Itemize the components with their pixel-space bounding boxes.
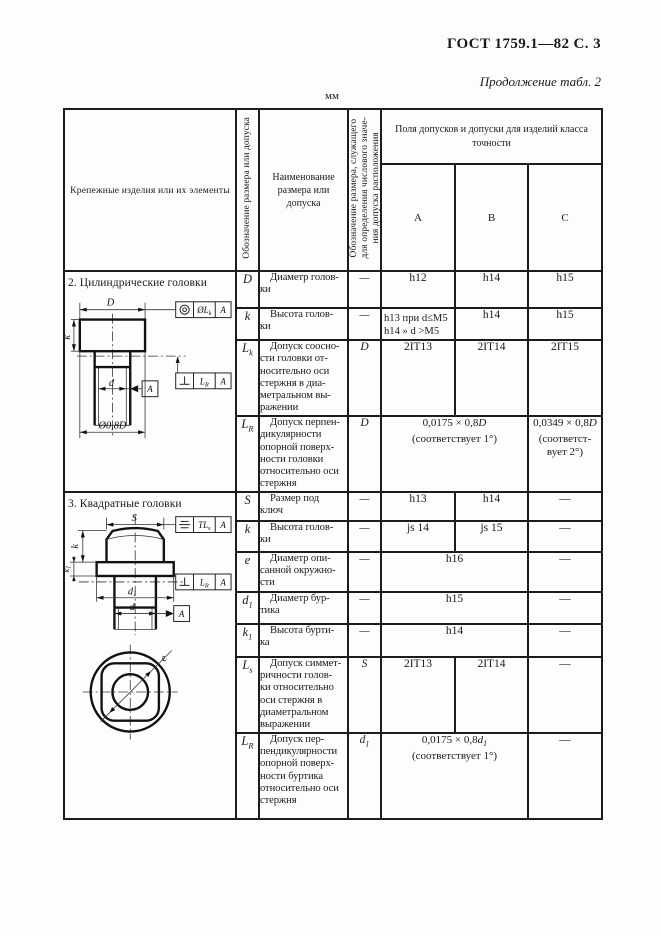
symmetry-tolerance-frame: TLs A [176,516,231,532]
header-name: Наименование размера или допуска [259,109,348,271]
ref-cell: — [348,552,381,592]
value-c: — [528,657,602,733]
frame-label: ØL [196,305,208,315]
value-c: — [528,521,602,552]
symbol-cell: S [236,492,259,521]
header-items-label: Крепежные изделия или их элементы [70,185,230,196]
header-symbol: Обозначение размера или допуска [236,109,259,271]
name-cell: Высота голов- ки [259,521,348,552]
svg-text:LR: LR [199,577,209,589]
value-c: h15 [528,271,602,308]
symbol-cell: LR [236,733,259,819]
header-items: Крепежные изделия или их элементы [64,109,236,271]
square-head-bottom-view: e [65,640,235,748]
cylindrical-head-drawing: D ØLk A k [65,289,235,447]
ref-cell: d1 [348,733,381,819]
header-name-label: Наименование размера или допуска [272,172,334,209]
symbol-cell: Ls [236,657,259,733]
frame-datum-label: A [219,577,226,587]
name-cell: Высота бурти- ка [259,624,348,657]
document-page: ГОСТ 1759.1—82 С. 3 Продолжение табл. 2 … [0,0,661,936]
ref-cell: — [348,492,381,521]
symmetry-icon [179,521,190,527]
ref-cell: — [348,592,381,624]
perpendicularity-tolerance-frame: LR A [176,356,231,389]
frame-label-sub: k [209,310,212,317]
value-ab: h14 [381,624,528,657]
value-c: — [528,552,602,592]
tolerance-table: Крепежные изделия или их элементы Обозна… [63,108,603,820]
header-ref: Обозначение размера, служащего для опред… [348,109,381,271]
value-a: js 14 [381,521,455,552]
svg-text:k1: k1 [65,565,72,572]
value-a: 2IT13 [381,657,455,733]
name-cell: Диаметр голов- ки [259,271,348,308]
header-ref-label: Обозначение размера, служащего для опред… [349,117,381,258]
name-cell: Высота голов- ки [259,308,348,340]
value-a: h13 при d≤M5 h14 » d >M5 [381,308,455,340]
header-class-b: В [455,164,528,271]
frame-label-sub: R [204,582,209,589]
symbol-cell: Lk [236,340,259,416]
datum-label: A [146,384,153,394]
dim-label-S: S [132,513,138,524]
ref-cell: S [348,657,381,733]
section-cylindrical-heads: 2. Цилиндрические головки D ØLk A [64,271,236,492]
datum-flag: A [174,605,190,621]
concentricity-tolerance-frame: ØLk A [176,302,231,318]
name-cell: Размер под ключ [259,492,348,521]
frame-label-sub: s [208,525,211,532]
header-class-c: С [528,164,602,271]
datum-label: A [178,609,185,619]
dim-label-k: k [65,335,73,340]
symbol-cell: e [236,552,259,592]
value-c: — [528,492,602,521]
value-c: — [528,733,602,819]
value-c: h15 [528,308,602,340]
dim-label-d: d [130,602,136,613]
name-cell: Допуск пер- пендикулярности опорной пове… [259,733,348,819]
value-b: h14 [455,492,528,521]
value-c: — [528,624,602,657]
symbol-cell: k [236,308,259,340]
frame-label-sub: R [204,381,209,388]
ref-cell: — [348,271,381,308]
frame-datum-label: A [219,520,226,530]
header-tolerance-group-label: Поля допусков и допуски для изделий клас… [395,124,588,149]
value-a: h13 [381,492,455,521]
table-row: 2. Цилиндрические головки D ØLk A [64,271,602,308]
value-a: h12 [381,271,455,308]
concentricity-icon [180,305,189,314]
value-ab: 0,0175 × 0,8d1 (соответствует 1°) [381,733,528,819]
symbol-cell: k [236,521,259,552]
section-caption: 3. Квадратные головки [65,493,235,510]
table-header-row: Крепежные изделия или их элементы Обозна… [64,109,602,164]
dim-label-d1-sub: 1 [133,591,136,598]
table-row: 3. Квадратные головки S TLs [64,492,602,521]
symbol-cell: k1 [236,624,259,657]
ref-cell: — [348,521,381,552]
value-ab: h15 [381,592,528,624]
value-b: 2IT14 [455,340,528,416]
value-c: 2IT15 [528,340,602,416]
units-label: мм [63,90,601,102]
square-head-drawing: S TLs A [65,510,235,640]
ref-cell: — [348,624,381,657]
dim-label-k1-sub: 1 [65,565,72,568]
ref-cell: — [348,308,381,340]
name-cell: Диаметр бур- тика [259,592,348,624]
name-cell: Допуск перпен- дикулярности опорной пове… [259,416,348,492]
value-b: h14 [455,308,528,340]
perpendicularity-icon [180,376,190,384]
value-c: 0,0349 × 0,8D (соответст- вует 2°) [528,416,602,492]
dim-label-d: d [109,378,115,389]
svg-text:LR: LR [199,376,209,388]
value-a: 2IT13 [381,340,455,416]
page-title: ГОСТ 1759.1—82 С. 3 [0,36,601,53]
svg-text:ØLk: ØLk [196,305,211,317]
header-tolerance-group: Поля допусков и допуски для изделий клас… [381,109,602,164]
svg-text:TLs: TLs [198,520,211,532]
name-cell: Допуск соосно- сти головки от- носительн… [259,340,348,416]
value-ab: h16 [381,552,528,592]
name-cell: Диаметр опи- санной окружно- сти [259,552,348,592]
value-b: h14 [455,271,528,308]
header-symbol-label: Обозначение размера или допуска [242,117,253,259]
value-c: — [528,592,602,624]
ref-cell: D [348,340,381,416]
symbol-cell: D [236,271,259,308]
frame-label: TL [198,520,208,530]
section-caption: 2. Цилиндрические головки [65,272,235,289]
header-class-a: А [381,164,455,271]
frame-datum-label: A [219,376,226,386]
frame-datum-label: A [219,305,226,315]
perpendicularity-icon [180,577,190,585]
perpendicularity-tolerance-frame: LR A [176,574,231,590]
dim-label-k: k [70,543,81,548]
datum-flag: A [142,381,158,397]
table-continuation-label: Продолжение табл. 2 [0,74,601,90]
value-b: js 15 [455,521,528,552]
dim-label-bearing: Ø0,8D [97,420,126,431]
value-ab: 0,0175 × 0,8D (соответствует 1°) [381,416,528,492]
symbol-cell: LR [236,416,259,492]
ref-cell: D [348,416,381,492]
datum-triangle-icon [130,385,138,392]
section-square-heads: 3. Квадратные головки S TLs [64,492,236,819]
dim-label-D: D [106,298,115,309]
value-b: 2IT14 [455,657,528,733]
name-cell: Допуск симмет- ричности голов- ки относи… [259,657,348,733]
symbol-cell: d1 [236,592,259,624]
datum-triangle-icon [166,610,174,617]
